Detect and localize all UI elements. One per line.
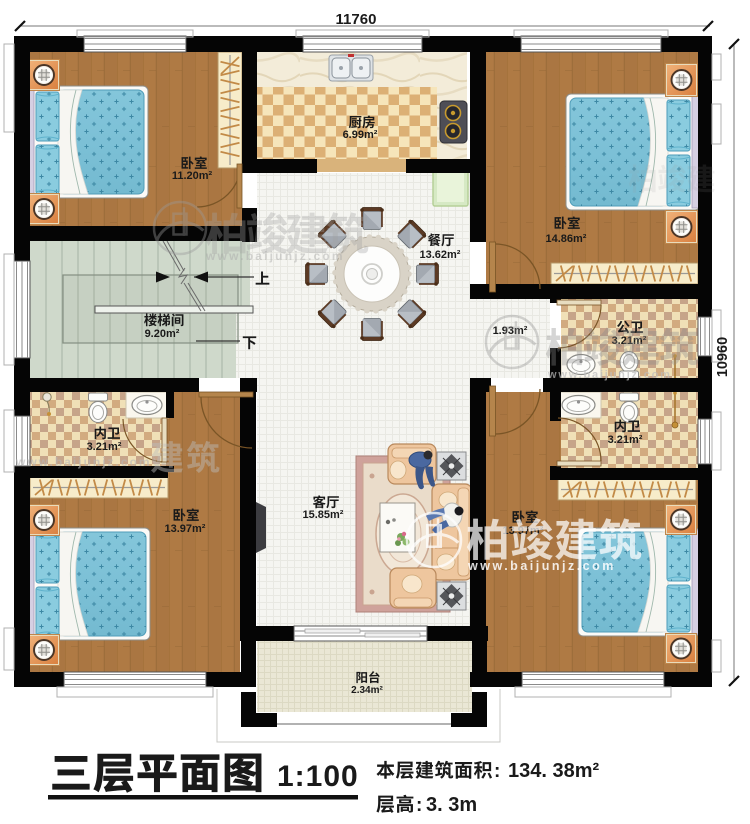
svg-text:10960: 10960 [715, 337, 731, 377]
svg-text:15.85m²: 15.85m² [303, 509, 344, 521]
svg-text:11760: 11760 [336, 11, 377, 28]
svg-text:www.baijunjz.com: www.baijunjz.com [547, 369, 672, 381]
svg-text:14.86m²: 14.86m² [546, 233, 587, 245]
svg-text::: : [416, 795, 422, 816]
svg-text:9.20m²: 9.20m² [145, 328, 180, 340]
svg-text:www.baijunjz.com: www.baijunjz.com [15, 455, 152, 469]
svg-text:6.99m²: 6.99m² [343, 129, 378, 141]
svg-text::: : [494, 761, 500, 782]
svg-text:2.34m²: 2.34m² [351, 685, 383, 696]
svg-text:3.21m²: 3.21m² [87, 441, 122, 453]
svg-text:11.20m²: 11.20m² [172, 170, 213, 182]
svg-text:3.21m²: 3.21m² [608, 434, 643, 446]
svg-text:www.baijunjz.com: www.baijunjz.com [467, 559, 616, 573]
svg-text:3. 3m: 3. 3m [426, 794, 477, 816]
svg-text:www.baijunjz.com: www.baijunjz.com [205, 249, 345, 263]
svg-text:1:100: 1:100 [277, 760, 359, 793]
svg-text:13.97m²: 13.97m² [165, 523, 206, 535]
svg-text:13.62m²: 13.62m² [420, 249, 461, 261]
svg-text:134. 38m²: 134. 38m² [508, 760, 600, 782]
